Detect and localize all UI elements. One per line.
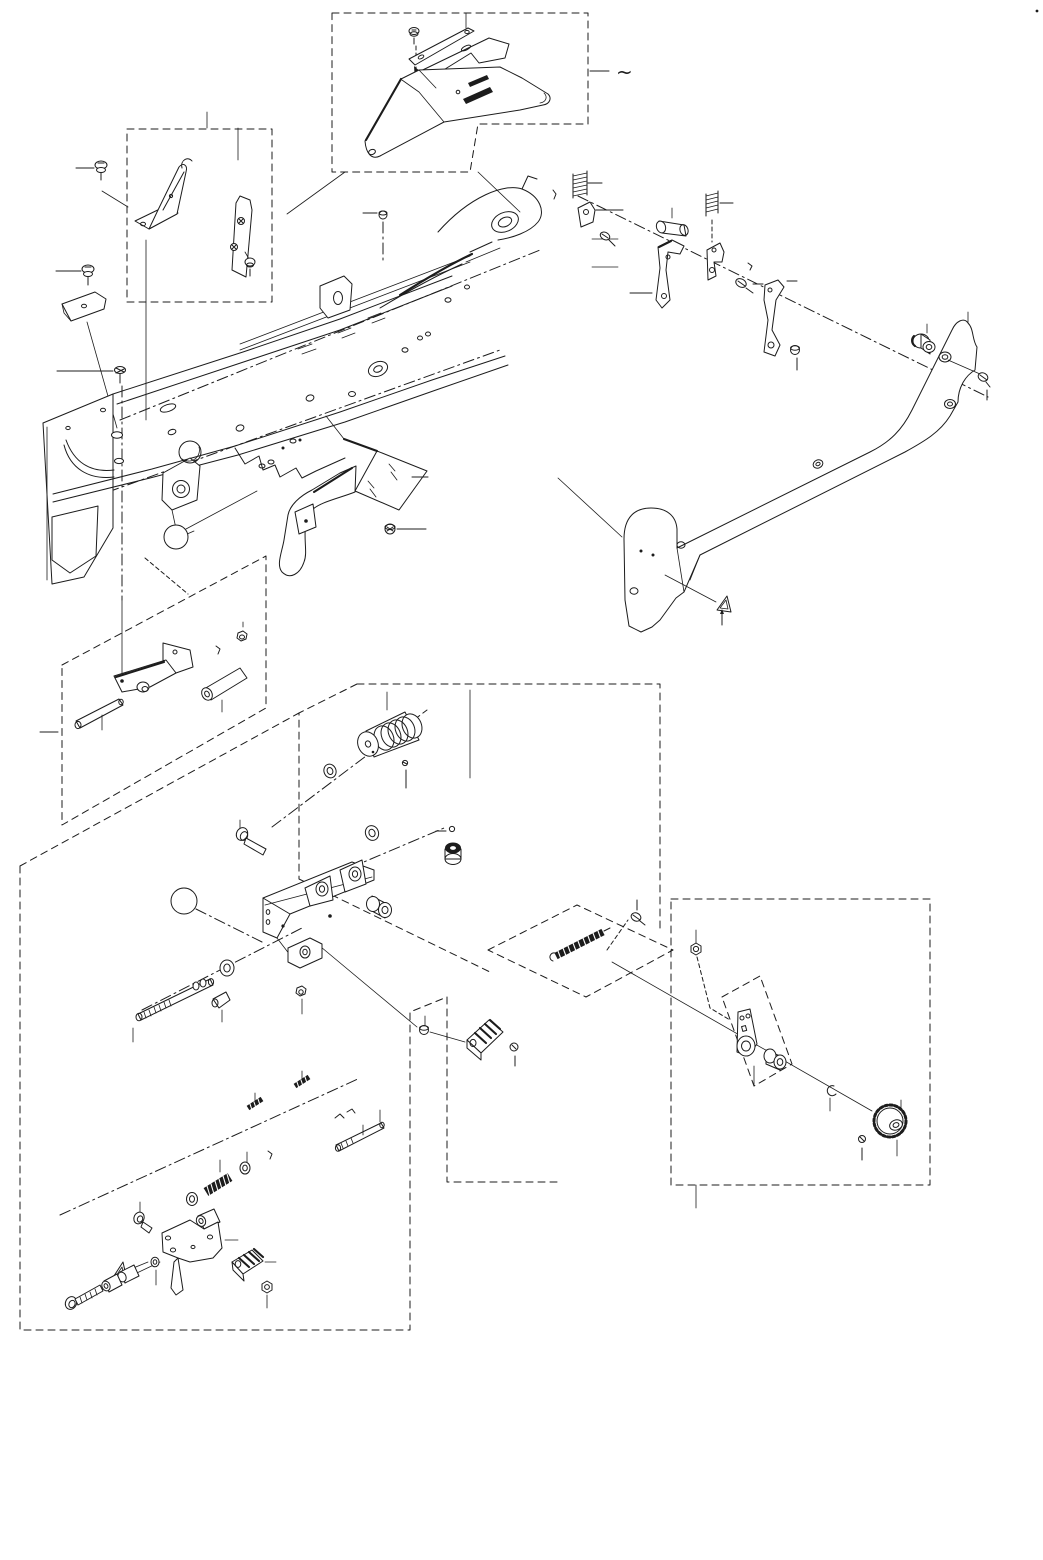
roller-cylinder-mid bbox=[200, 668, 247, 712]
cover-plate-small bbox=[62, 292, 106, 321]
connector-leader-lines bbox=[60, 46, 988, 1300]
diagram-page: ~ bbox=[0, 0, 1043, 1560]
link-small-pin bbox=[216, 646, 220, 654]
feed-bracket bbox=[263, 860, 374, 968]
washer-pin-mid bbox=[151, 1257, 159, 1285]
bushing-dark bbox=[436, 826, 461, 864]
leader-topbox-frame bbox=[287, 172, 520, 214]
cover-screw bbox=[977, 371, 990, 400]
block-nut bbox=[262, 1281, 272, 1308]
gear-screw bbox=[859, 1136, 866, 1161]
ratchet-gear bbox=[874, 1100, 906, 1156]
gear-box bbox=[671, 899, 930, 1185]
tiny-pin bbox=[748, 263, 752, 270]
frame-washer-2 bbox=[115, 458, 124, 463]
feed-adjust-group bbox=[133, 711, 645, 1066]
bracket-roller bbox=[367, 896, 392, 918]
top-guide-assembly: ~ bbox=[365, 13, 633, 157]
latch-bracket-2 bbox=[707, 243, 752, 280]
central-knob-box bbox=[299, 684, 660, 972]
serrated-block-2 bbox=[467, 1020, 518, 1066]
socket-bolt bbox=[63, 1285, 103, 1311]
caution-triangle-1 bbox=[717, 596, 731, 625]
frame-right-claw bbox=[438, 176, 541, 262]
cover-plate-body bbox=[624, 320, 977, 632]
axis-right-parts bbox=[578, 196, 988, 397]
compression-spring-1 bbox=[573, 171, 602, 198]
socket-screw-small bbox=[132, 1202, 152, 1233]
bushing-pin bbox=[449, 826, 454, 831]
coil-spring bbox=[206, 1160, 230, 1196]
upper-left-bracket-group bbox=[56, 159, 255, 321]
latch-bracket-main bbox=[162, 1209, 238, 1295]
link-lever-g bbox=[737, 1009, 757, 1086]
washer-ring-1 bbox=[322, 762, 338, 779]
washer-ring-2 bbox=[363, 824, 380, 843]
mid-left-link-box bbox=[62, 556, 266, 825]
bracket-screw bbox=[385, 524, 426, 534]
shaft-washer bbox=[220, 960, 234, 976]
spring-screw bbox=[630, 900, 645, 925]
spring-washer-left bbox=[187, 1193, 198, 1206]
frame-washer-1 bbox=[112, 432, 123, 438]
serrated-block-1 bbox=[232, 1249, 276, 1281]
page-mark-dot bbox=[1036, 10, 1039, 13]
bracket-screw-2 bbox=[420, 1016, 429, 1035]
frame-sub-bracket bbox=[279, 439, 428, 576]
link-nut bbox=[237, 622, 247, 641]
ball-knob bbox=[171, 888, 197, 914]
small-spring-2 bbox=[295, 1071, 309, 1088]
rubber-roller bbox=[912, 324, 935, 354]
crank-lever bbox=[114, 643, 193, 692]
tilde-label: ~ bbox=[616, 60, 633, 84]
roller-cylinder-top bbox=[655, 208, 690, 236]
strip-bracket bbox=[231, 196, 256, 277]
curved-lever bbox=[764, 280, 797, 356]
clevis-forks bbox=[335, 1109, 355, 1118]
hex-screw-1 bbox=[76, 161, 107, 180]
shoulder-bolt bbox=[234, 820, 266, 855]
guide-cover bbox=[365, 67, 550, 157]
right-lever-parts bbox=[553, 171, 800, 370]
small-spring-1 bbox=[248, 1093, 262, 1110]
bottom-left-lever-box bbox=[20, 713, 560, 1330]
tiny-pin-2 bbox=[268, 1151, 272, 1159]
callout-ball-circle bbox=[164, 525, 188, 549]
knob-set-screw bbox=[402, 760, 407, 788]
set-screw-top bbox=[363, 211, 387, 262]
guide-screw bbox=[409, 28, 419, 45]
link-lever-group bbox=[40, 622, 247, 732]
compression-spring-2 bbox=[706, 191, 733, 216]
lever-screw bbox=[791, 346, 800, 371]
frame-holes bbox=[159, 285, 469, 468]
gusset-bracket bbox=[135, 159, 192, 229]
clevis-rod bbox=[335, 1109, 384, 1151]
flat-screw bbox=[57, 367, 126, 384]
threaded-shaft bbox=[133, 979, 214, 1042]
exploded-diagram-canvas: ~ bbox=[0, 0, 1043, 1560]
frame-zigzag-edge bbox=[235, 448, 345, 478]
frame-boss-upper bbox=[320, 276, 352, 318]
small-nut bbox=[296, 986, 306, 1014]
cone-pin bbox=[212, 992, 230, 1022]
bent-lever bbox=[630, 240, 684, 308]
pivot-pin bbox=[75, 699, 123, 730]
frame-dash-marks bbox=[298, 313, 385, 354]
side-cover-plate bbox=[624, 312, 990, 632]
spring-washer-right bbox=[240, 1152, 250, 1174]
latch-claw bbox=[171, 1258, 183, 1295]
knurled-knob bbox=[354, 711, 425, 759]
small-hook-pin bbox=[553, 190, 556, 199]
leader-spring-gear bbox=[607, 220, 730, 1020]
roller-g bbox=[764, 1049, 786, 1070]
hex-screw-2 bbox=[56, 265, 94, 285]
gear-nut bbox=[691, 930, 701, 955]
latch-screw bbox=[599, 230, 615, 246]
leader-bracket-box bbox=[102, 112, 238, 420]
tension-spring-box bbox=[488, 905, 673, 997]
extension-spring bbox=[550, 928, 610, 961]
